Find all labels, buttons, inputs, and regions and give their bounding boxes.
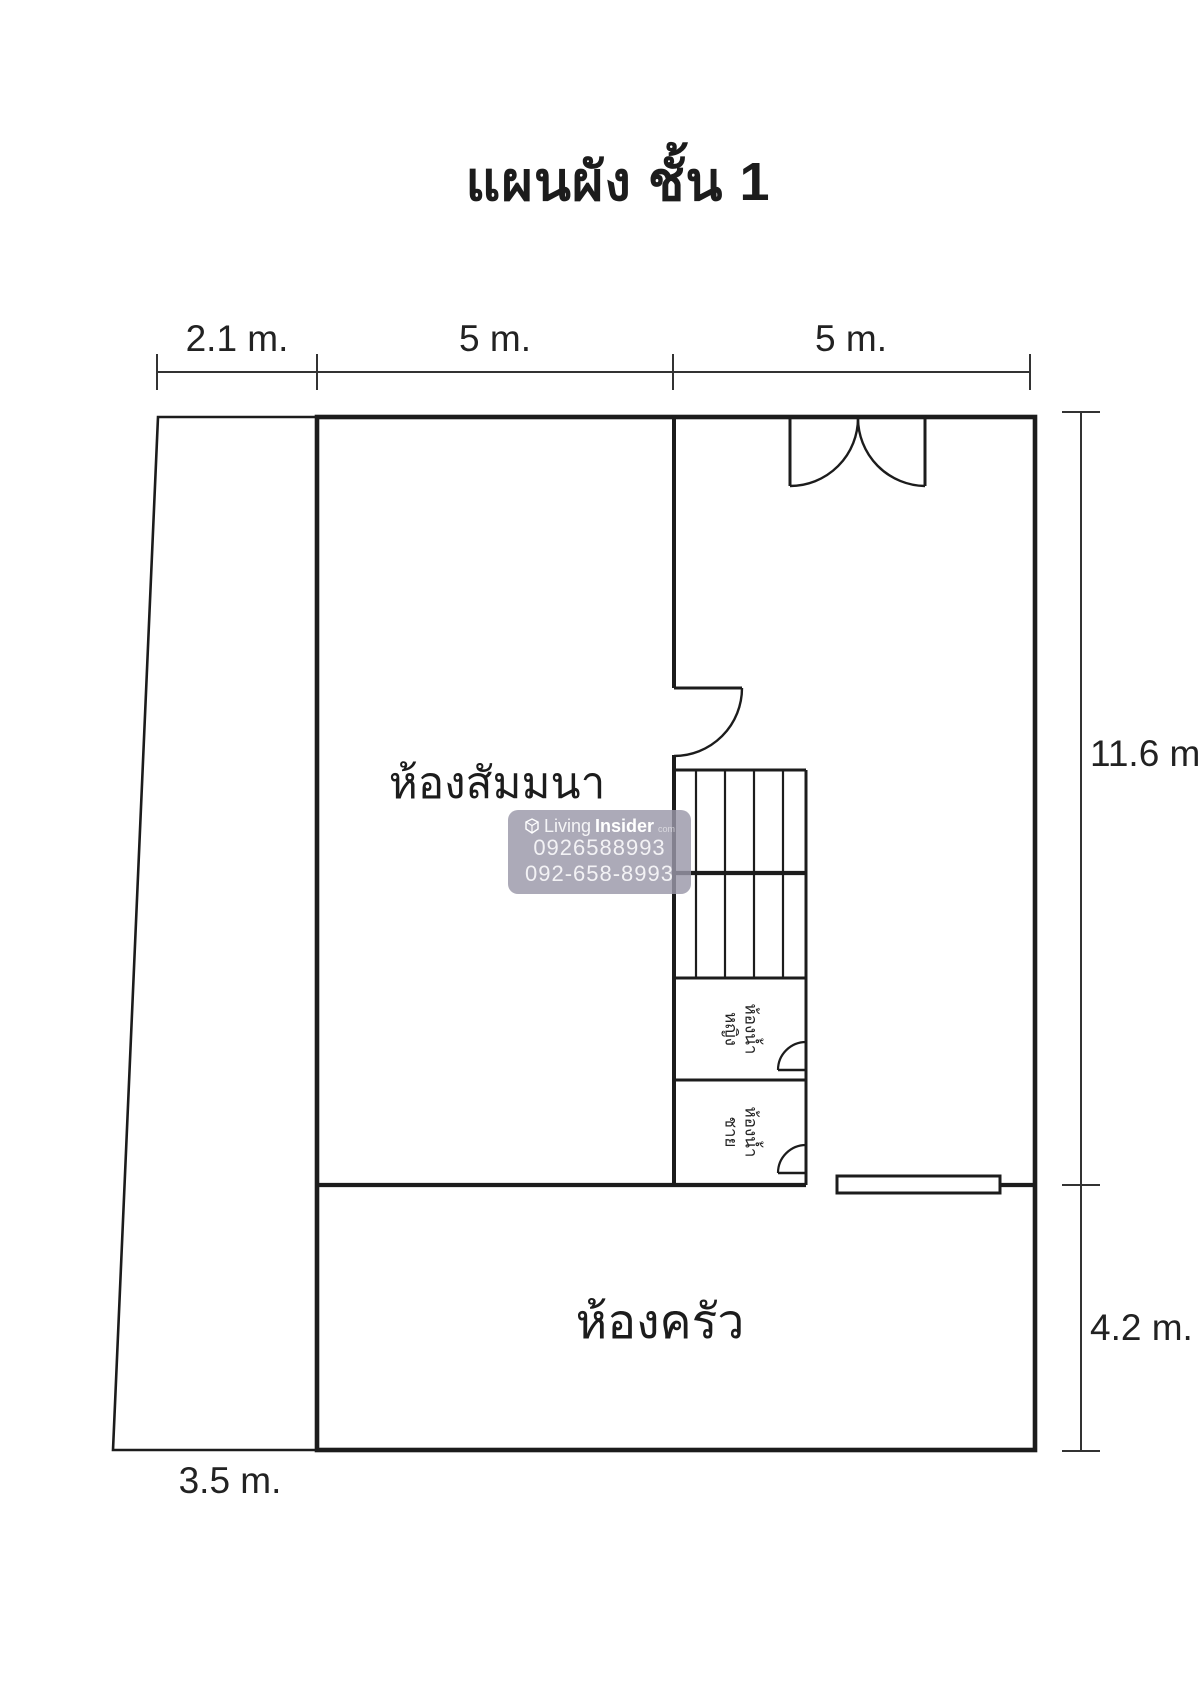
bathroom-men-door [778,1145,806,1173]
watermark-brand-tld: com [658,825,675,834]
left-strip-outline [113,417,317,1450]
watermark: LivingInsidercom 0926588993 092-658-8993 [508,810,691,894]
watermark-phone-1: 0926588993 [533,835,665,861]
dimension-label-bottom-left: 3.5 m. [179,1460,282,1502]
livinginsider-cube-icon [524,818,540,834]
watermark-brand-living: Living [544,817,591,835]
dimension-label-right-upper: 11.6 m. [1090,733,1200,775]
kitchen-counter [837,1176,1000,1193]
seminar-room-label: ห้องสัมมนา [389,748,606,818]
bathroom-men-label: ห้องน้ำ ชาย [721,1107,760,1158]
dimension-label-top-right: 5 m. [815,318,887,360]
bathroom-women-label: ห้องน้ำ หญิง [721,1004,760,1055]
entrance-double-door [790,417,925,486]
dimension-label-right-lower: 4.2 m. [1090,1307,1193,1349]
dimension-label-top-left: 2.1 m. [186,318,289,360]
staircase [674,770,806,978]
watermark-brand: LivingInsidercom [524,817,675,835]
watermark-brand-insider: Insider [595,817,654,835]
bathroom-women-door [778,1042,806,1070]
seminar-room-door [674,688,742,756]
watermark-phone-2: 092-658-8993 [525,861,674,887]
floor-plan-page: แผนผัง ชั้น 1 2.1 m. 5 m. 5 m. 11.6 m. 4… [0,0,1200,1696]
page-title: แผนผัง ชั้น 1 [466,138,771,224]
right-dimension-line [1062,412,1100,1451]
dimension-label-top-middle: 5 m. [459,318,531,360]
kitchen-room-label: ห้องครัว [576,1284,745,1360]
